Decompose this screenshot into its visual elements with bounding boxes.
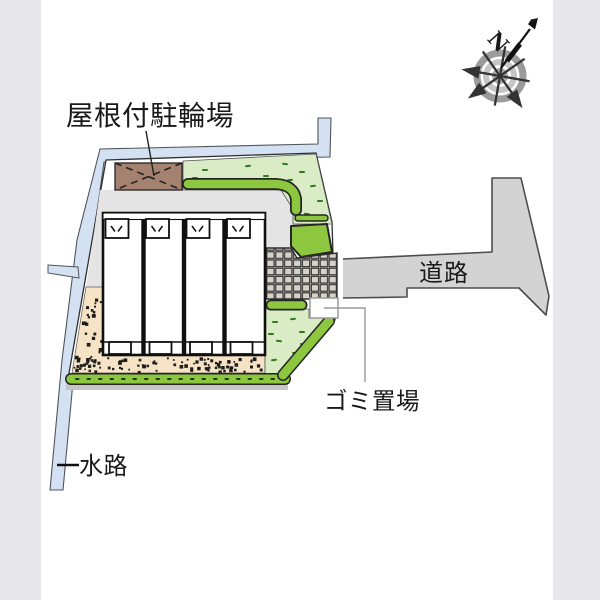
gravel-dot <box>173 363 176 366</box>
gravel-dot <box>233 361 235 363</box>
site-plan-svg: 道路 ゴミ置場 N 屋根付駐輪場 水路 <box>0 0 600 600</box>
road: 道路 <box>343 178 549 315</box>
gravel-dot <box>93 365 96 368</box>
gravel-dot <box>197 367 200 370</box>
gravel-dot <box>215 362 217 364</box>
gravel-dot <box>139 359 142 362</box>
gravel-dot <box>251 359 253 361</box>
gravel-dot <box>92 337 95 340</box>
gravel-dot <box>128 369 130 371</box>
gravel-dot <box>94 302 96 304</box>
gravel-dot <box>87 343 91 347</box>
gravel-dot <box>87 314 89 316</box>
gravel-dot <box>107 357 109 359</box>
unit-step <box>190 342 212 354</box>
party-wall <box>222 219 226 355</box>
gravel-dot <box>91 356 93 358</box>
gravel-dot <box>156 370 158 372</box>
gravel-dot <box>89 370 91 372</box>
gravel-dot <box>229 366 232 369</box>
gravel-dot <box>94 359 97 362</box>
gravel-dot <box>207 358 209 360</box>
gravel-dot <box>93 333 96 336</box>
gravel-dot <box>92 314 96 318</box>
gravel-dot <box>94 370 97 373</box>
gravel-dot <box>167 357 169 359</box>
gravel-dot <box>200 357 203 360</box>
gravel-dot <box>98 351 100 353</box>
gravel-dot <box>204 362 207 365</box>
gravel-dot <box>77 365 80 368</box>
gravel-dot <box>85 333 87 335</box>
unit-entry-porch <box>146 219 169 238</box>
gravel-dot <box>180 365 184 369</box>
entrance-green-patch <box>291 224 332 257</box>
gravel-dot <box>108 367 111 370</box>
unit-step <box>231 342 253 354</box>
label-garbage-area: ゴミ置場 <box>324 387 420 415</box>
grass-dash <box>299 331 305 333</box>
gravel-dot <box>100 301 102 303</box>
gravel-dot <box>84 368 86 370</box>
gravel-dot <box>223 370 225 372</box>
gravel-dot <box>226 366 229 369</box>
gravel-dot <box>147 365 150 368</box>
gravel-dot <box>82 321 86 325</box>
gravel-dot <box>253 357 257 361</box>
gravel-dot <box>100 341 102 343</box>
gravel-dot <box>187 359 189 361</box>
gravel-dot <box>215 367 217 369</box>
gravel-dot <box>195 360 198 363</box>
gravel-dot <box>94 306 96 308</box>
gravel-dot <box>85 323 88 326</box>
gravel-dot <box>221 366 225 370</box>
waterway-callout: 水路 <box>57 452 128 480</box>
label-waterway: 水路 <box>79 452 128 480</box>
gravel-dot <box>190 369 193 372</box>
gravel-dot <box>75 356 78 359</box>
covered-bicycle-parking <box>115 163 182 190</box>
gravel-dot <box>91 309 94 312</box>
gravel-dot <box>208 364 210 366</box>
gravel-dot <box>88 365 91 368</box>
left-edge-band <box>0 0 41 600</box>
gravel-dot <box>78 358 80 360</box>
gravel-dot <box>88 316 90 318</box>
gravel-dot <box>95 299 98 302</box>
gravel-dot <box>119 360 121 362</box>
grass-dash <box>272 321 278 323</box>
gravel-dot <box>181 361 183 363</box>
gravel-dot <box>227 360 230 363</box>
gravel-dot <box>208 366 210 368</box>
gravel-dot <box>112 368 114 370</box>
garbage-station: ゴミ置場 <box>310 298 420 415</box>
gravel-dot <box>250 366 253 369</box>
gravel-dot <box>91 359 93 361</box>
gravel-dot <box>239 358 242 361</box>
gravel-dot <box>257 364 260 367</box>
unit-step <box>150 342 172 354</box>
gravel-dot <box>205 367 208 370</box>
gravel-dot <box>210 359 213 362</box>
gravel-dot <box>79 367 81 369</box>
gravel-dot <box>234 369 237 372</box>
gravel-dot <box>99 367 101 369</box>
gravel-dot <box>75 369 78 372</box>
gravel-dot <box>124 358 128 362</box>
gravel-dot <box>260 369 263 372</box>
grass-dash <box>317 200 323 202</box>
gravel-dot <box>152 361 155 364</box>
unit-entry-porch <box>187 219 210 238</box>
unit-entry-porch <box>227 219 250 238</box>
gravel-dot <box>74 367 76 369</box>
gravel-dot <box>193 363 195 365</box>
party-wall <box>141 219 145 355</box>
gravel-dot <box>229 369 233 373</box>
right-edge-band <box>553 0 600 600</box>
grass-dash <box>202 169 208 171</box>
unit-entry-porch <box>106 219 129 238</box>
gravel-dot <box>121 368 123 370</box>
gravel-dot <box>83 364 86 367</box>
gravel-dot <box>184 364 188 368</box>
gravel-dot <box>86 358 90 362</box>
gravel-dot <box>121 360 124 363</box>
waterway-branch <box>48 265 79 278</box>
gravel-dot <box>173 359 175 361</box>
gravel-dot <box>204 359 206 361</box>
grass-dash <box>268 333 274 335</box>
gravel-dot <box>142 364 144 366</box>
grass-dash <box>299 171 305 173</box>
label-bicycle-parking: 屋根付駐輪場 <box>66 100 234 132</box>
gravel-dot <box>218 366 221 369</box>
gravel-dot <box>80 364 83 367</box>
gravel-dot <box>86 306 89 309</box>
party-wall <box>182 219 186 355</box>
gravel-dot <box>243 371 245 373</box>
compass-rose: N <box>470 18 538 106</box>
gravel-dot <box>97 362 100 365</box>
gravel-dot <box>137 365 139 367</box>
unit-step <box>109 342 131 354</box>
building <box>103 213 265 355</box>
site-plan-page: 道路 ゴミ置場 N 屋根付駐輪場 水路 <box>0 0 600 600</box>
gravel-dot <box>235 363 239 367</box>
grass-dash <box>263 175 269 177</box>
label-road: 道路 <box>419 259 469 287</box>
